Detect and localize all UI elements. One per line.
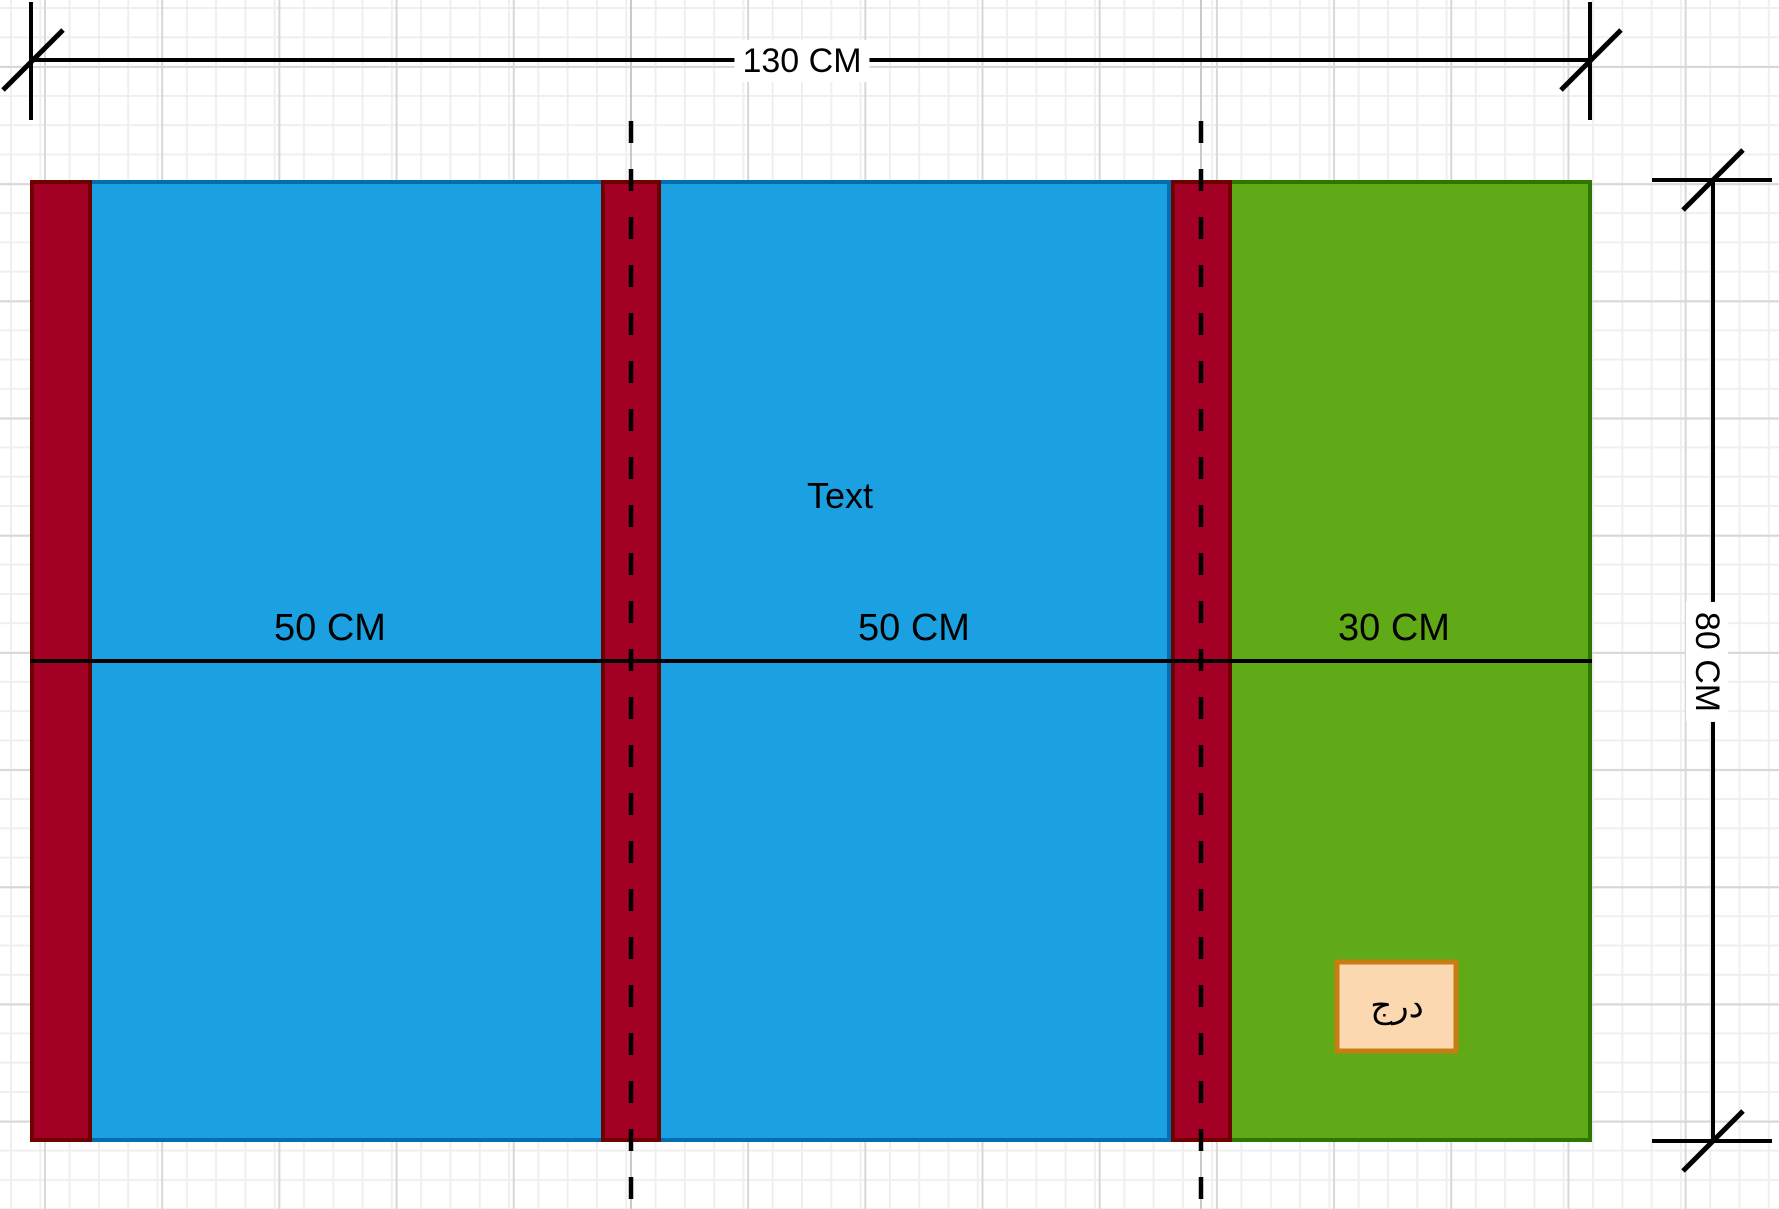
drawer-box-label: درج — [1370, 989, 1424, 1023]
section-label-1: 50 CM — [274, 609, 386, 647]
width-dimension-label: 130 CM — [734, 40, 869, 82]
section-label-2: 50 CM — [858, 609, 970, 647]
diagram-svg — [0, 0, 1779, 1209]
section-label-3: 30 CM — [1338, 609, 1450, 647]
height-dimension-label: 80 CM — [1686, 602, 1728, 722]
drawing-canvas: { "diagram": { "dimension_width": {"labe… — [0, 0, 1779, 1209]
free-text-label[interactable]: Text — [807, 478, 873, 514]
